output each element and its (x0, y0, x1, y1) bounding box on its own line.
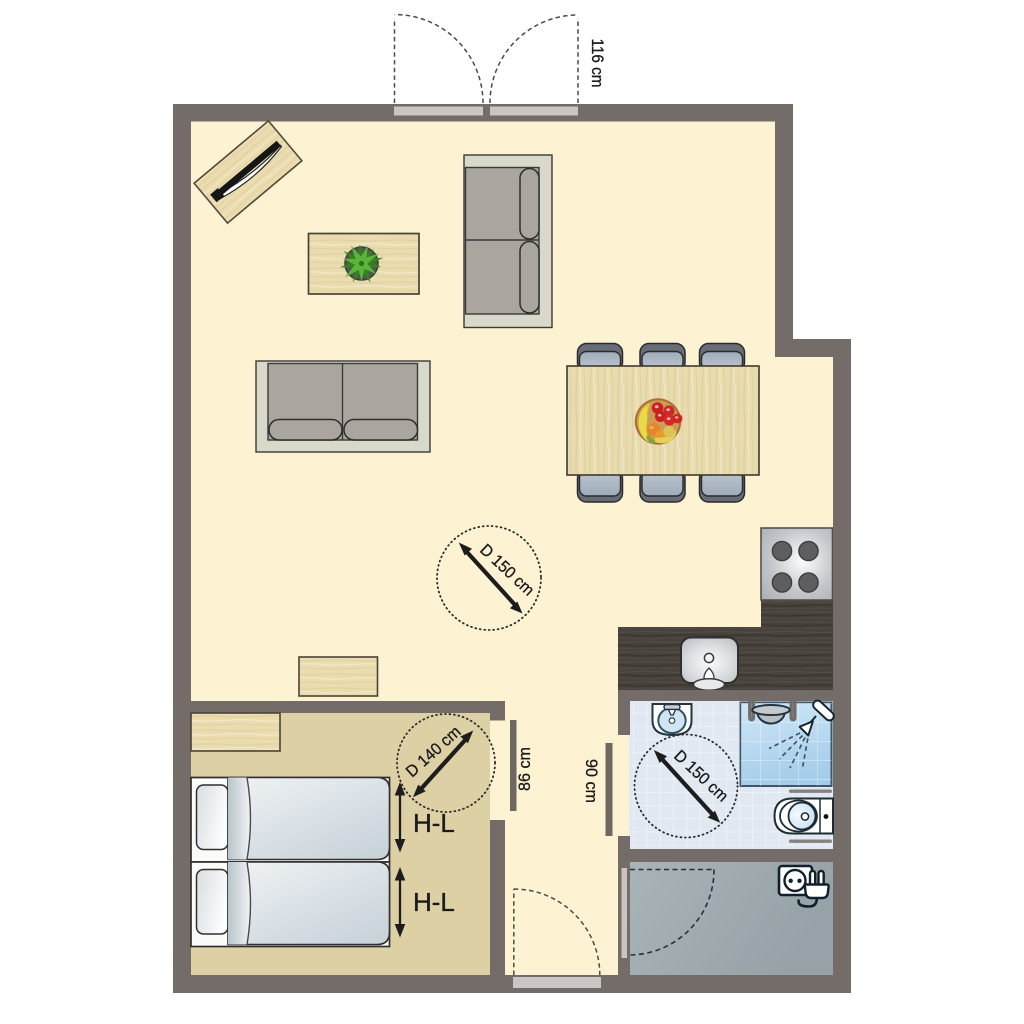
svg-text:H-L: H-L (413, 887, 455, 917)
svg-text:116 cm: 116 cm (588, 39, 606, 88)
svg-text:86 cm: 86 cm (516, 747, 534, 791)
svg-text:90 cm: 90 cm (582, 759, 600, 803)
svg-text:H-L: H-L (413, 808, 455, 838)
